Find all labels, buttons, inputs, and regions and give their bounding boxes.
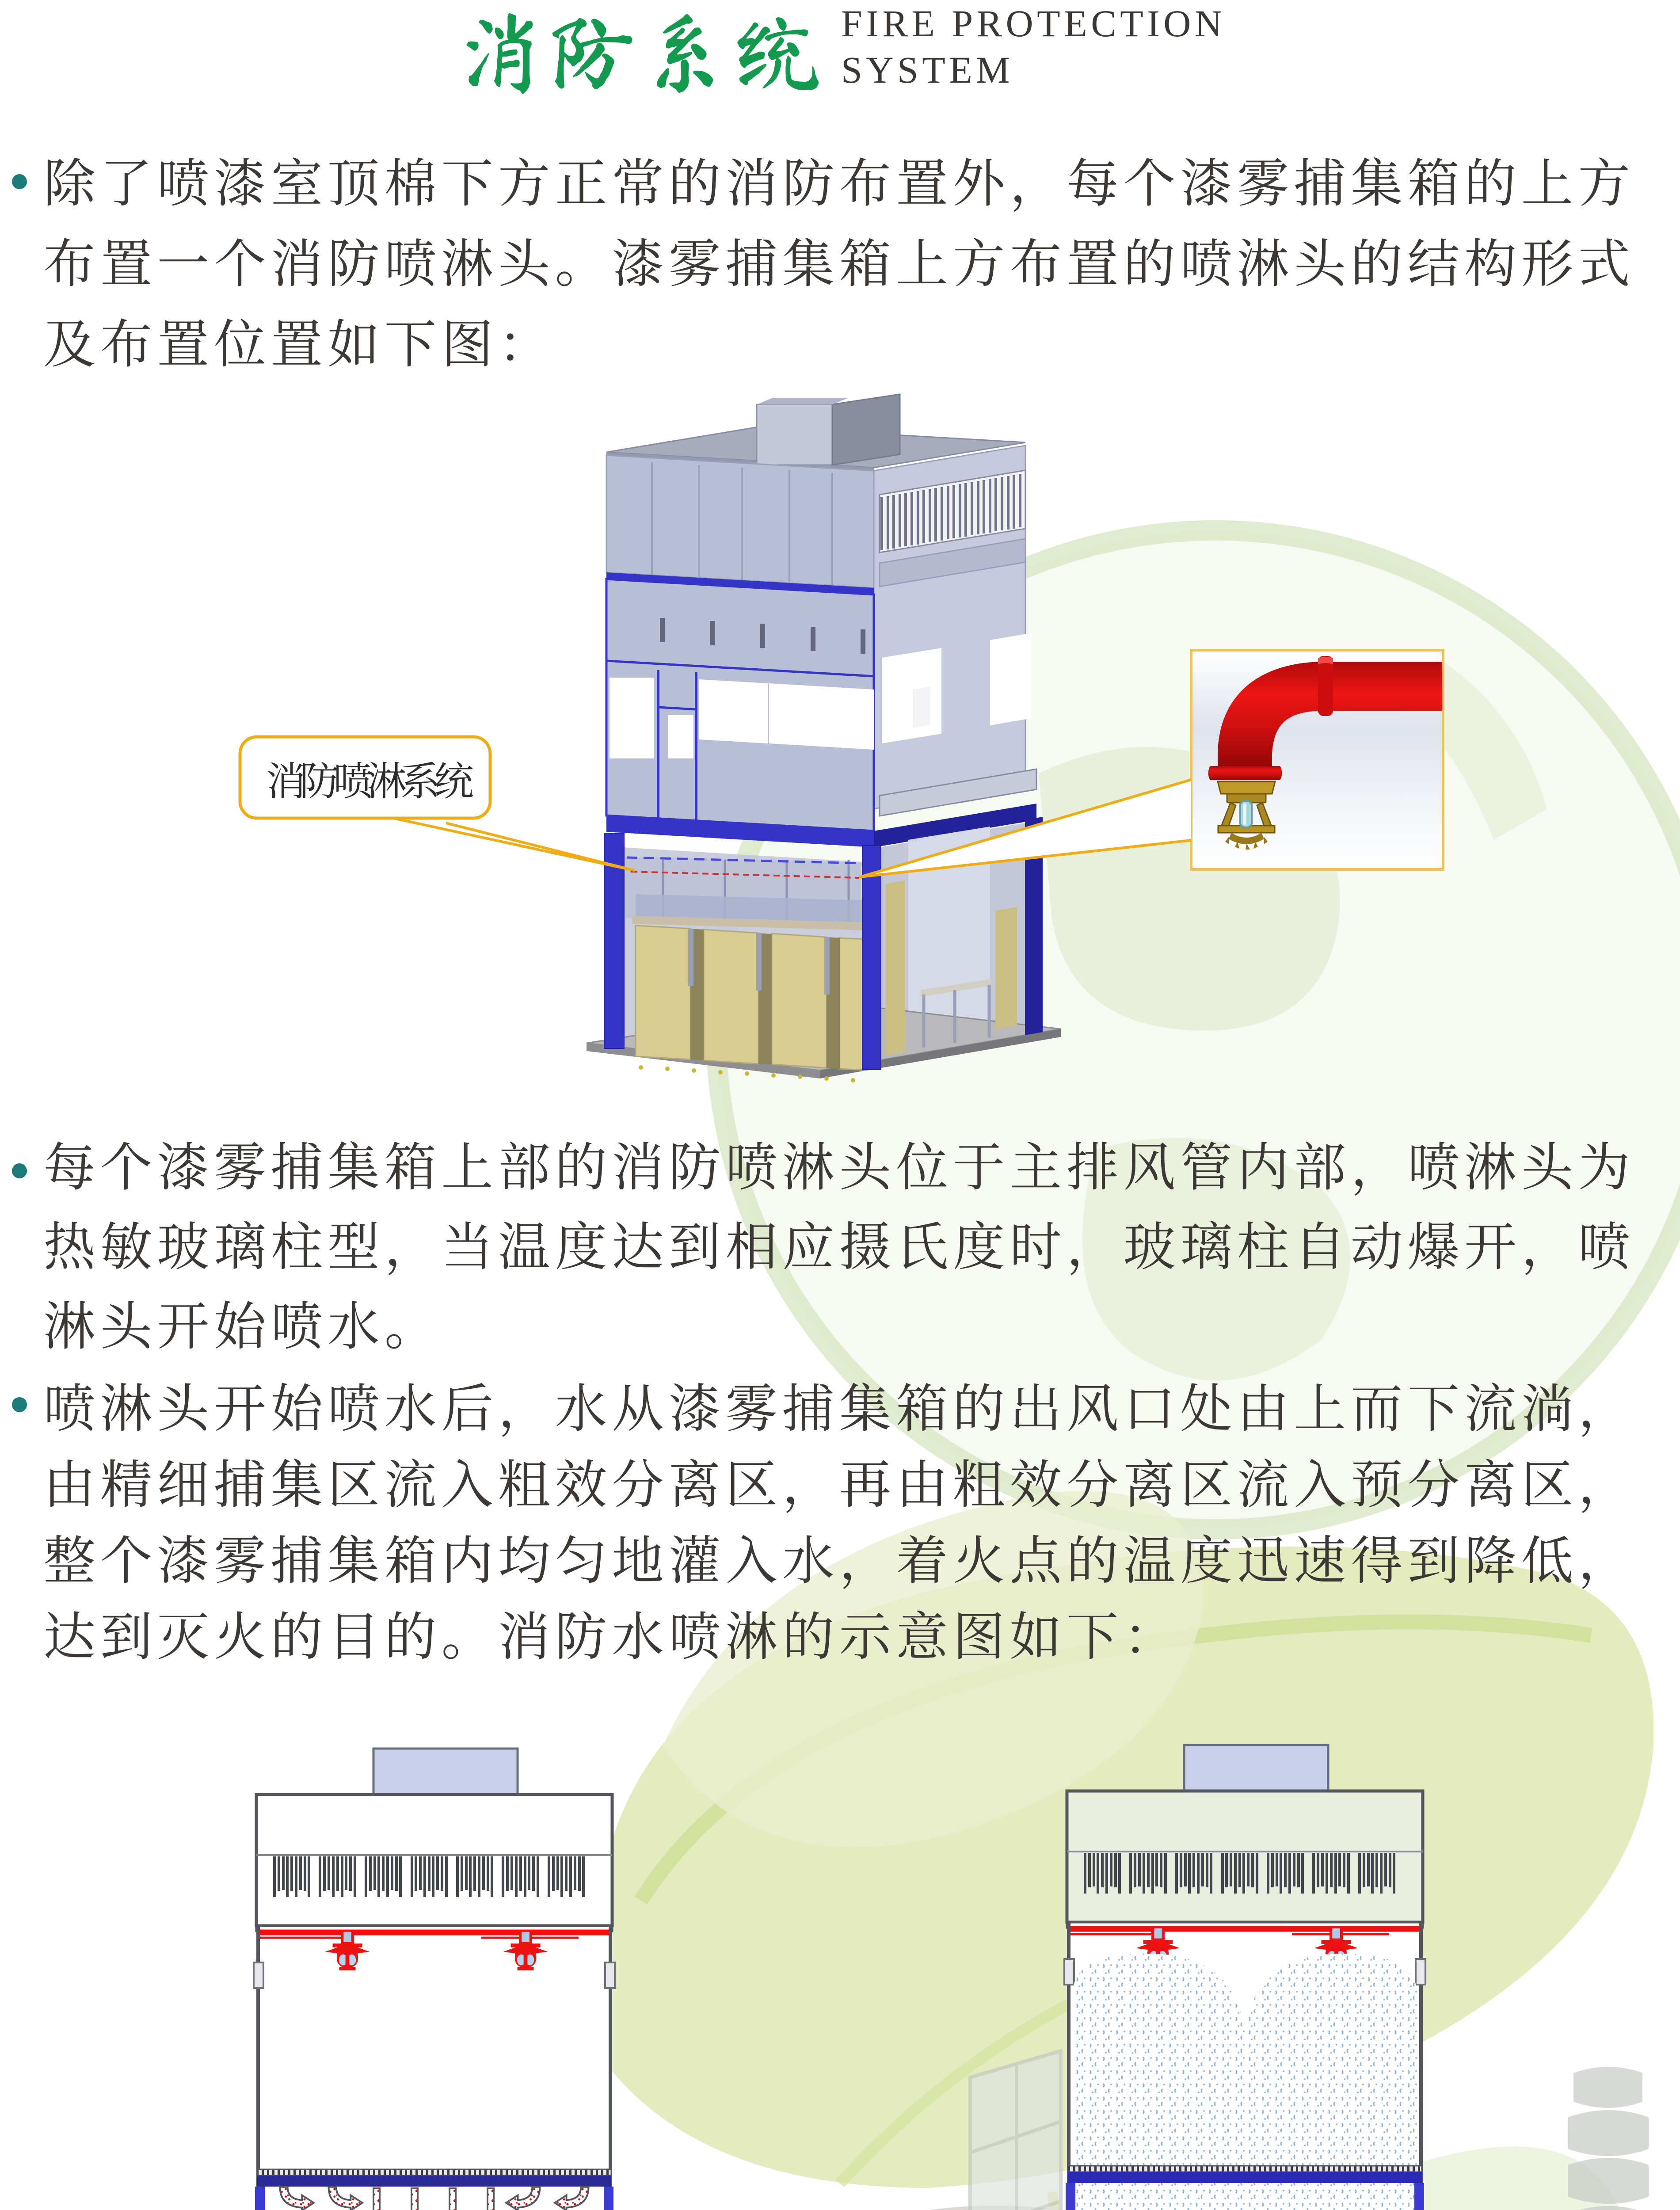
svg-text:FIRE PROTECTION: FIRE PROTECTION bbox=[841, 2, 1226, 45]
svg-text:SYSTEM: SYSTEM bbox=[841, 49, 1013, 91]
